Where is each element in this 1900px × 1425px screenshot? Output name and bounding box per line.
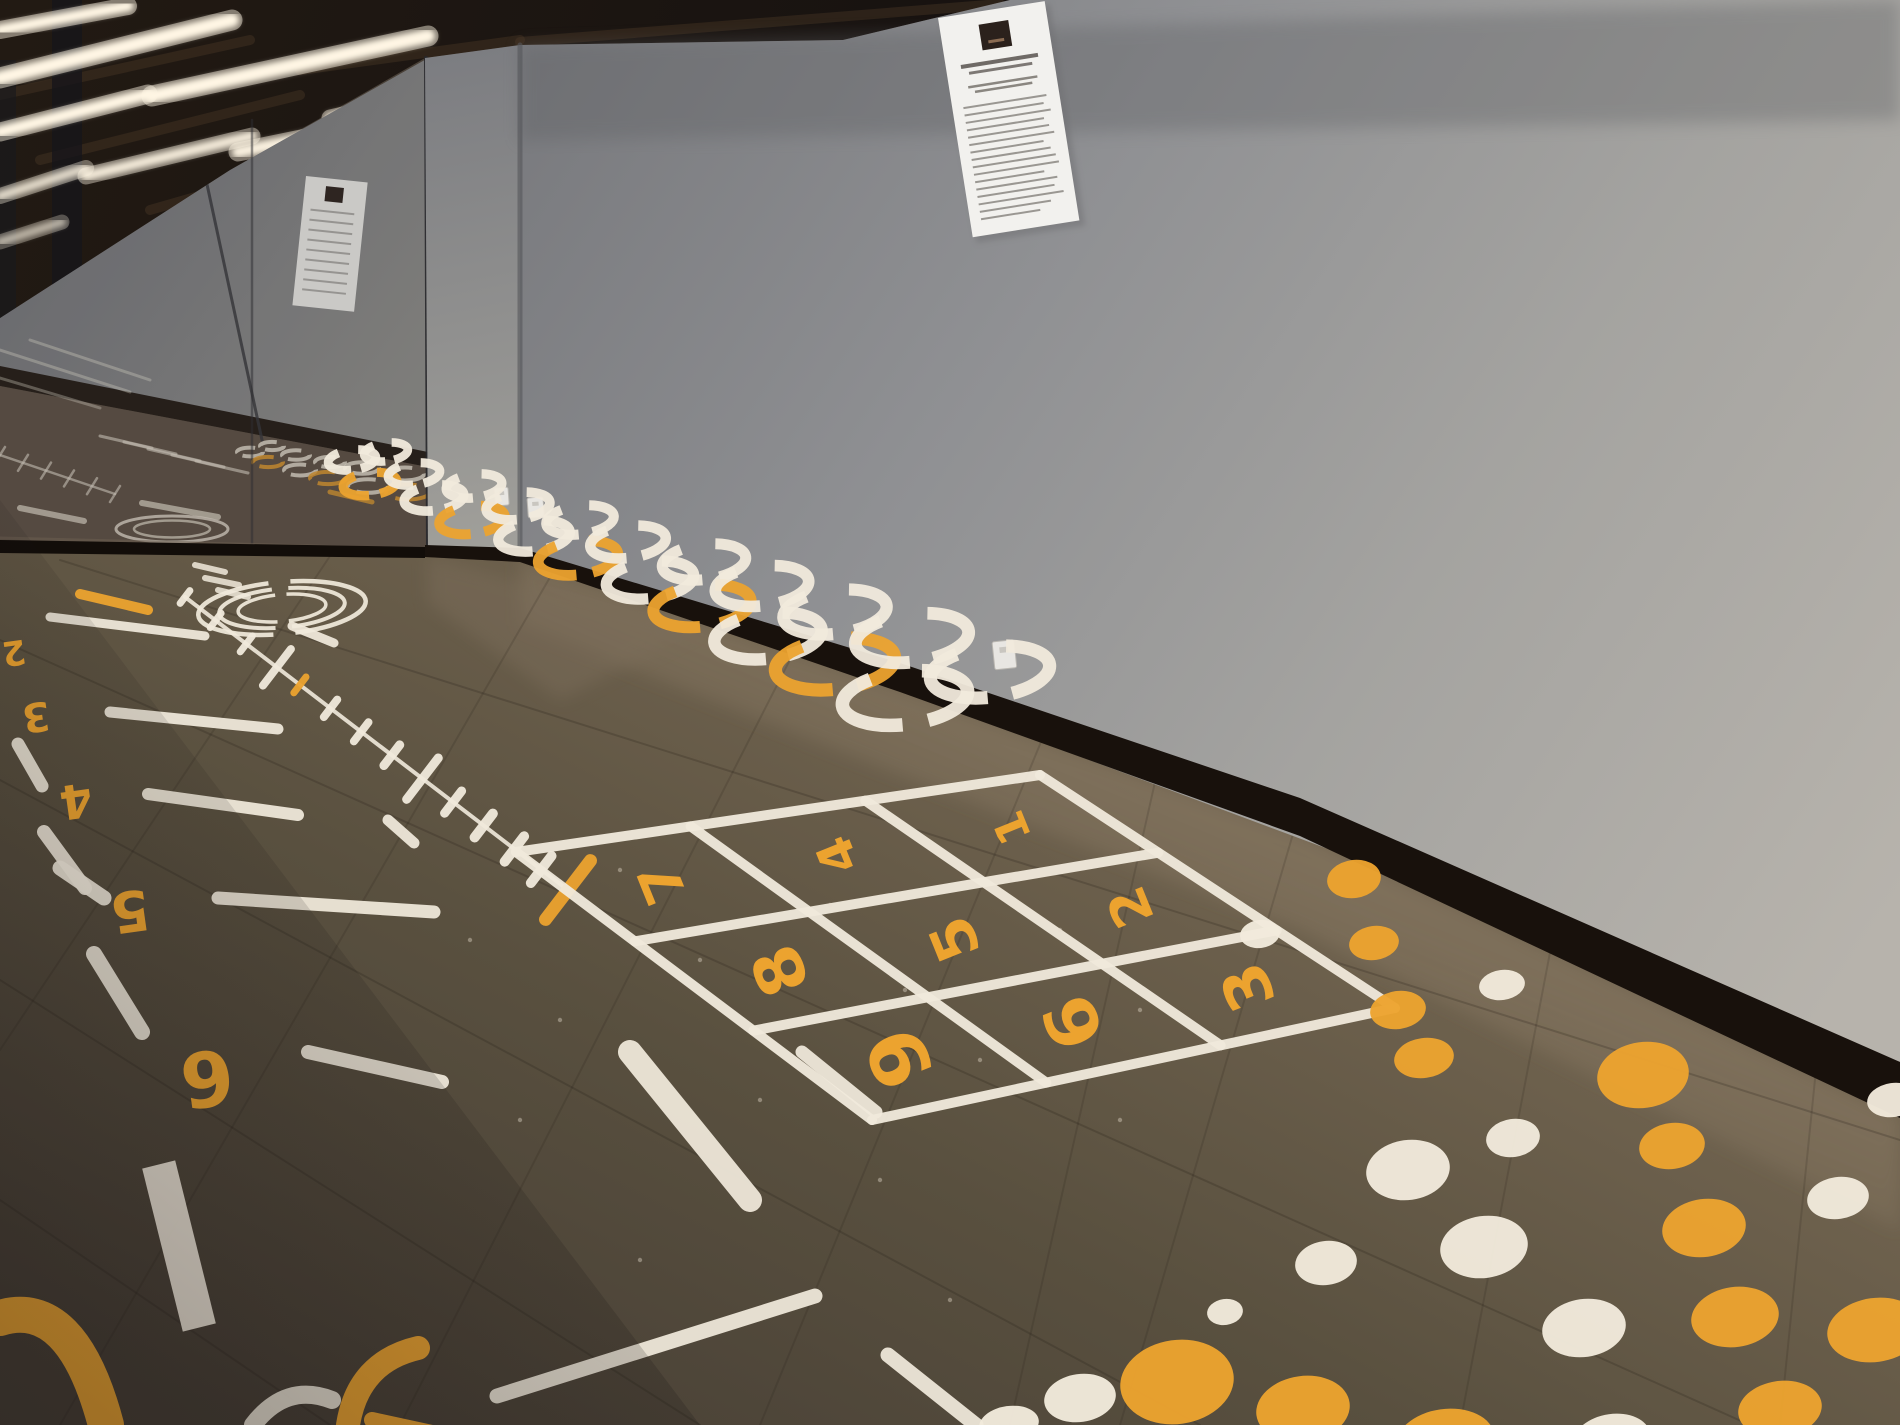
dust-speck — [1058, 928, 1062, 932]
dust-speck — [1118, 1118, 1122, 1122]
dust-speck — [618, 868, 622, 872]
scene-canvas: 12345678923456 — [0, 0, 1900, 1425]
dust-speck — [1138, 1008, 1142, 1012]
dust-speck — [758, 1098, 762, 1102]
dust-speck — [518, 1118, 522, 1122]
dust-speck — [1008, 878, 1012, 882]
gym-corridor-photo: 12345678923456 — [0, 0, 1900, 1425]
dust-speck — [828, 903, 832, 907]
dust-speck — [638, 1258, 642, 1262]
poster-logo — [979, 20, 1013, 50]
dust-speck — [468, 938, 472, 942]
dust-speck — [558, 1018, 562, 1022]
dust-speck — [698, 958, 702, 962]
dust-speck — [878, 1178, 882, 1182]
dust-speck — [948, 1298, 952, 1302]
outlet-socket — [532, 502, 539, 506]
dust-speck — [903, 988, 907, 992]
dust-speck — [978, 1058, 982, 1062]
